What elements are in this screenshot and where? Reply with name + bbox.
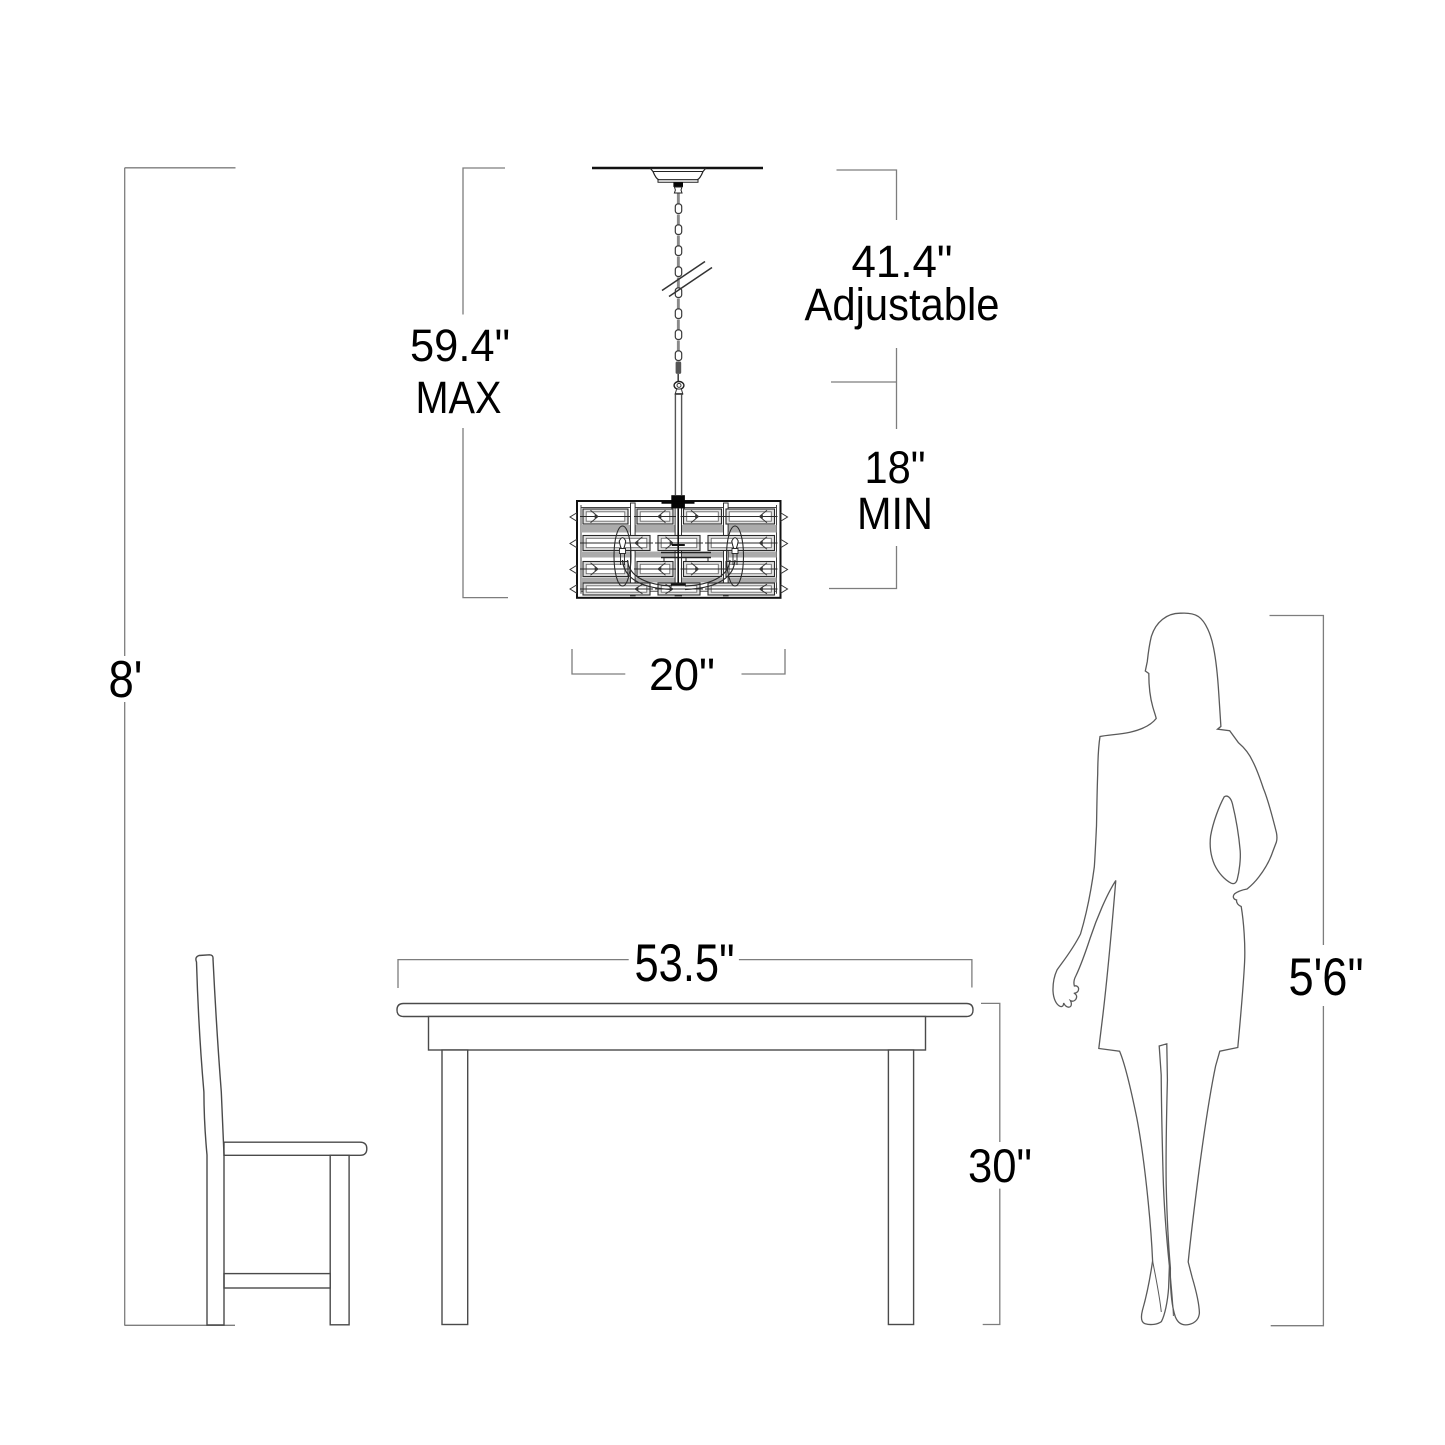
svg-text:20": 20" [649, 649, 715, 700]
svg-text:8': 8' [109, 651, 143, 709]
svg-text:5'6": 5'6" [1289, 948, 1364, 1007]
svg-text:30": 30" [968, 1139, 1032, 1192]
svg-text:Adjustable: Adjustable [805, 279, 1000, 330]
svg-text:18": 18" [865, 442, 926, 493]
svg-text:MIN: MIN [857, 488, 933, 539]
svg-text:MAX: MAX [416, 372, 502, 423]
svg-text:53.5": 53.5" [635, 934, 735, 993]
svg-text:59.4": 59.4" [410, 320, 510, 371]
